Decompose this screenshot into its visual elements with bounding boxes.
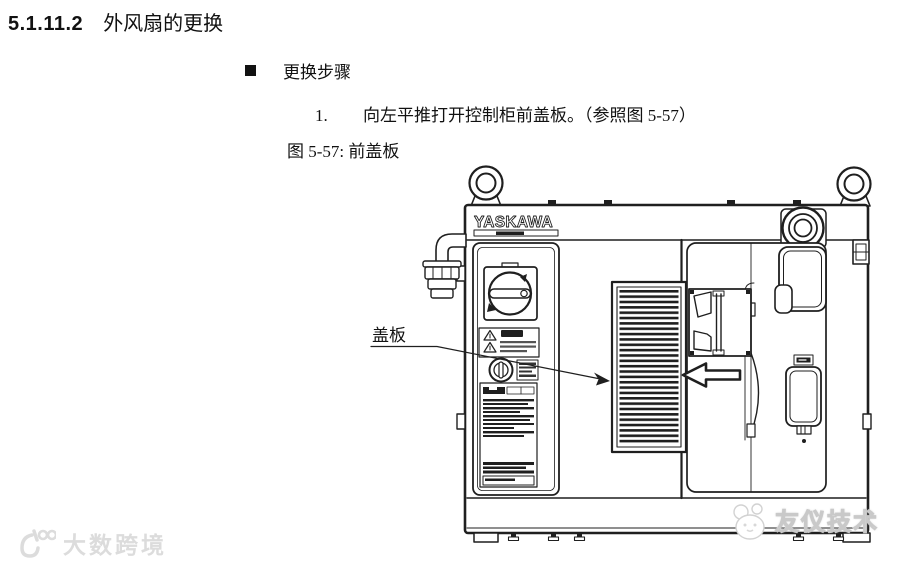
watermark-right-text: 友仪技术 <box>775 502 879 537</box>
warning-label <box>479 328 539 357</box>
vent-cover-grille <box>612 282 686 452</box>
figure-5-57-drawing: YASKAWA <box>0 0 900 561</box>
main-power-switch <box>484 263 537 320</box>
rating-nameplate <box>480 383 537 487</box>
watermark-right: 友仪技术 <box>729 502 879 544</box>
steps-heading-row: 更换步骤 <box>245 58 351 83</box>
top-door-handle <box>775 247 826 313</box>
step-number: 1. <box>315 106 363 126</box>
right-lifting-eyebolt <box>838 168 871 207</box>
right-side-tab <box>863 414 871 429</box>
control-cabinet: YASKAWA <box>371 167 871 543</box>
section-heading: 5.1.11.2外风扇的更换 <box>8 7 223 36</box>
section-title: 外风扇的更换 <box>103 13 223 35</box>
fan-unit <box>689 289 751 356</box>
watermark-right-mascot-icon <box>729 502 771 544</box>
left-lifting-eyebolt <box>470 167 503 207</box>
left-side-tab-2 <box>457 414 465 429</box>
watermark-left-text: 大数跨境 <box>63 526 167 560</box>
steps-heading: 更换步骤 <box>283 63 351 82</box>
yaskawa-logo: YASKAWA <box>474 214 553 231</box>
watermark-left-logo-icon <box>18 528 56 558</box>
section-number: 5.1.11.2 <box>8 13 83 35</box>
figure-caption: 图 5-57: 前盖板 <box>287 137 399 162</box>
brand-plate: YASKAWA <box>474 214 558 236</box>
watermark-left: 大数跨境 <box>18 526 167 560</box>
step-1: 1.向左平推打开控制柜前盖板。（参照图 5-57） <box>315 101 696 126</box>
step-text: 向左平推打开控制柜前盖板。（参照图 5-57） <box>363 106 696 125</box>
right-hinge-bracket <box>853 240 869 264</box>
manual-page: 5.1.11.2外风扇的更换 更换步骤 1.向左平推打开控制柜前盖板。（参照图 … <box>0 0 900 561</box>
bullet-square-icon <box>245 65 256 76</box>
cover-plate-label: 盖板 <box>372 326 406 345</box>
conduit-elbow <box>423 234 466 298</box>
